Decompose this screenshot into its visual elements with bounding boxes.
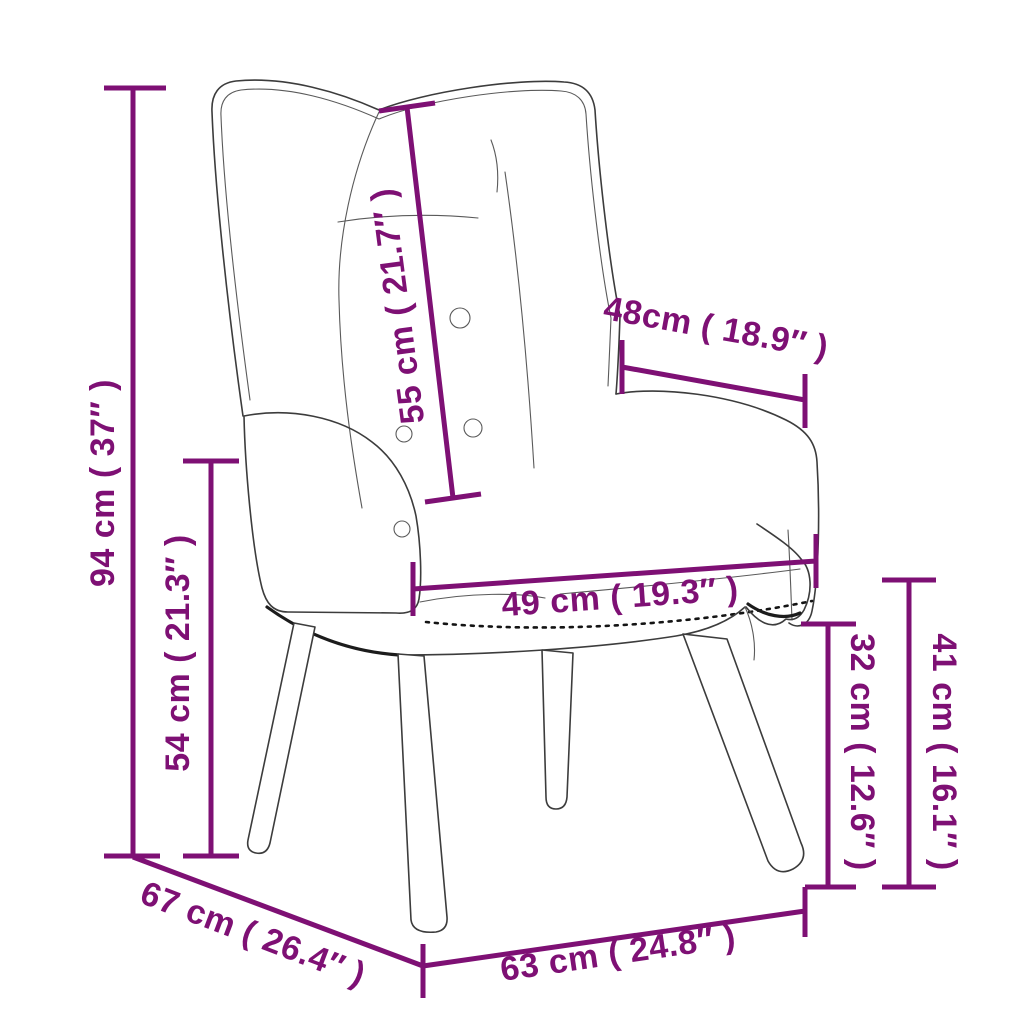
chair-button [396,426,412,442]
dim-label-front-height: 41 cm ( 16.1″ ) [925,633,963,870]
chair-back-seam-left [339,112,379,508]
dim-label-armrest-height: 54 cm ( 21.3″ ) [159,534,197,771]
dim-label-overall-height: 94 cm ( 37″ ) [84,379,122,587]
chair-left-arm [244,413,421,613]
chair-button [450,308,470,328]
chair-left-arm-shadow [267,607,399,655]
dim-label-base-width: 63 cm ( 24.8″ ) [498,917,738,989]
dim-label-seat-height: 32 cm ( 12.6″ ) [843,633,881,870]
chair-leg-back-left [248,623,315,853]
dimension-diagram: 94 cm ( 37″ ) 54 cm ( 21.3″ ) 55 cm ( 21… [0,0,1024,1024]
chair-leg-front-left [398,654,447,932]
dim-label-upper-width: 48cm ( 18.9″ ) [601,289,832,367]
chair-drawing [212,80,819,932]
chair-leg-front-right [683,634,804,872]
chair-dimension-svg: 94 cm ( 37″ ) 54 cm ( 21.3″ ) 55 cm ( 21… [0,0,1024,1024]
chair-seat-right-shadow [748,604,800,616]
dimension-labels: 94 cm ( 37″ ) 54 cm ( 21.3″ ) 55 cm ( 21… [84,186,963,994]
chair-back-crease [338,215,478,222]
chair-back-crease-upper [491,140,498,192]
chair-button [464,419,482,437]
chair-back-seam-right [505,172,534,468]
chair-button [394,521,410,537]
chair-leg-back-right [542,650,573,809]
